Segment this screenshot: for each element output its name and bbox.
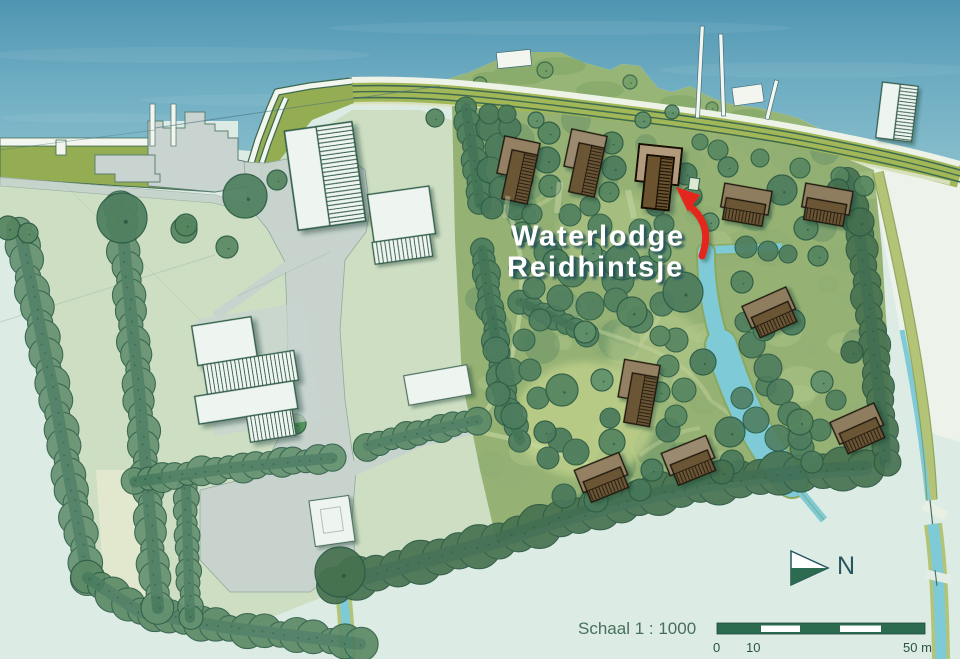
svg-text:N: N bbox=[837, 552, 855, 580]
svg-text:0: 0 bbox=[713, 640, 720, 655]
svg-text:Reidhintsje: Reidhintsje bbox=[507, 252, 684, 284]
svg-text:Schaal 1 : 1000: Schaal 1 : 1000 bbox=[578, 619, 696, 638]
svg-text:10: 10 bbox=[746, 640, 760, 655]
svg-text:Waterlodge: Waterlodge bbox=[511, 221, 685, 253]
svg-text:50 m: 50 m bbox=[903, 640, 932, 655]
